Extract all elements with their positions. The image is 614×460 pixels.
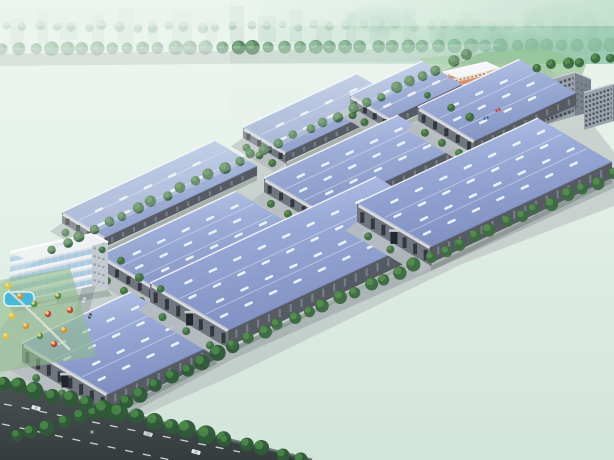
tree [227,340,237,350]
tree [315,299,328,312]
tree [361,118,369,126]
tree [132,387,148,403]
tree [528,204,539,215]
tree [25,382,43,400]
tree [455,239,465,249]
tree [148,378,161,391]
tree [561,187,575,201]
tree [592,177,605,190]
tree [178,420,196,438]
tree [10,377,26,393]
tree [545,198,558,211]
industrial-park-aerial-rendering [0,0,614,460]
tree [11,429,23,441]
tree [182,327,190,335]
tree [465,113,474,122]
tree [254,440,270,456]
tree [45,389,60,404]
tree [267,200,275,208]
tree [210,345,226,361]
tree [73,409,87,423]
tree [51,341,57,347]
top-haze [0,0,614,26]
tree [67,307,73,313]
tree [5,283,11,289]
tree [24,425,38,439]
tree [182,364,195,377]
tree [349,287,360,298]
tree [242,332,254,344]
tree [157,285,165,293]
tree [289,312,301,324]
tree [406,257,420,271]
tree [441,246,452,257]
tree [23,323,29,329]
tree [194,355,210,371]
tree [135,273,144,282]
tree [45,311,51,317]
tree [37,333,43,339]
tree [99,246,106,253]
tree [58,415,71,428]
tree [532,64,541,73]
tree [31,301,37,307]
tree [590,53,600,63]
tree [502,216,513,227]
tree [424,92,431,99]
tree [94,400,112,418]
tree [164,419,179,434]
tree [271,318,282,329]
tree [365,278,378,291]
tree [447,104,455,112]
tree [469,230,481,242]
tree [575,58,585,68]
tree [378,274,389,285]
tree [259,325,272,338]
tree [563,58,574,69]
tree [576,183,587,194]
tree [393,266,406,279]
tree [165,370,179,384]
tree [39,420,55,436]
tree [159,313,167,321]
tree [240,438,254,452]
tree [110,404,128,422]
tree [421,129,429,137]
tree [32,374,40,382]
tree [220,435,232,447]
tree [386,246,394,254]
tree [482,223,495,236]
rendering-stage [0,0,614,460]
tree [146,413,163,430]
tree [117,257,125,265]
tree [55,293,61,299]
tree [516,210,528,222]
tree [333,290,347,304]
tree [17,293,23,299]
tree [129,408,144,423]
tree [304,306,315,317]
tree [197,425,216,444]
tree [268,159,276,167]
tree [546,59,556,69]
tree [9,313,15,319]
tree [61,327,67,333]
tree [364,232,372,240]
tree [79,396,93,410]
tree [63,390,79,406]
tree [438,139,446,147]
tree [425,252,436,263]
tree [3,333,9,339]
